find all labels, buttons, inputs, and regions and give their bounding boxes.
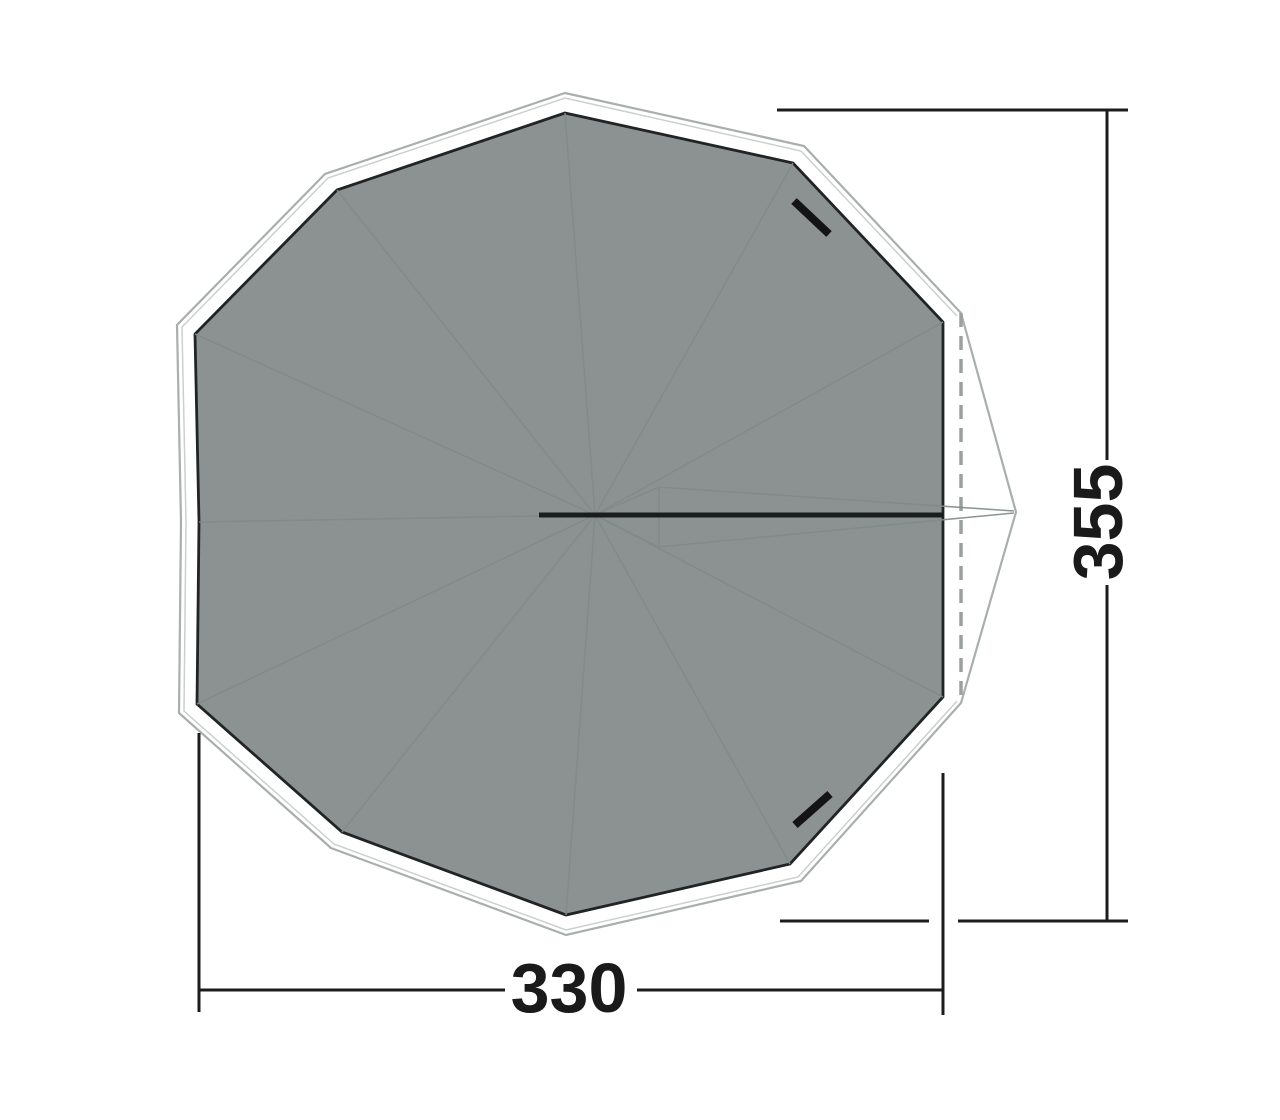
tent-floorplan-page: 330 355 [0, 0, 1280, 1120]
depth-dimension-label: 355 [1059, 464, 1137, 581]
tent-floorplan-diagram: 330 355 [0, 0, 1280, 1120]
width-dimension-label: 330 [511, 949, 628, 1027]
